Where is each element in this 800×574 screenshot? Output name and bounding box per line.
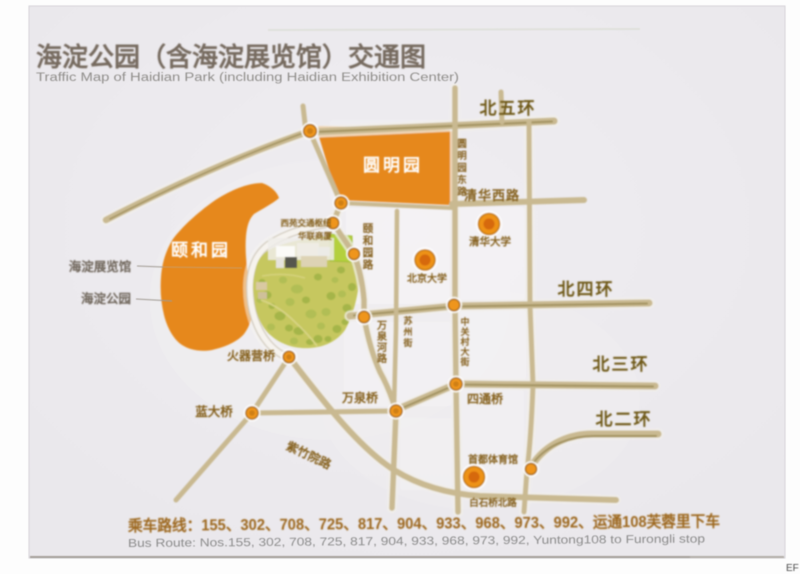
svg-text:EF: EF: [786, 563, 799, 574]
svg-text:颐和园路: 颐和园路: [362, 223, 374, 271]
svg-text:火器营桥: 火器营桥: [227, 348, 276, 363]
svg-text:万泉河路: 万泉河路: [376, 320, 388, 365]
svg-text:西苑交通枢纽: 西苑交通枢纽: [280, 218, 332, 228]
svg-text:苏州街: 苏州街: [402, 315, 412, 348]
svg-text:清华大学: 清华大学: [469, 235, 511, 248]
svg-text:北京大学: 北京大学: [407, 272, 447, 285]
svg-text:万泉桥: 万泉桥: [341, 390, 379, 405]
svg-text:北二环: 北二环: [596, 410, 653, 429]
svg-text:圆明园东路: 圆明园东路: [457, 139, 467, 198]
svg-text:清华西路: 清华西路: [464, 188, 520, 203]
svg-text:北四环: 北四环: [558, 280, 615, 299]
svg-text:Traffic Map of Haidian Park (i: Traffic Map of Haidian Park (including H…: [36, 72, 459, 84]
svg-text:首都体育馆: 首都体育馆: [468, 453, 518, 466]
svg-text:海淀公园（含海淀展览馆）交通图: 海淀公园（含海淀展览馆）交通图: [36, 42, 426, 72]
svg-text:颐和园: 颐和园: [171, 241, 231, 260]
svg-text:圆明园: 圆明园: [363, 156, 423, 175]
svg-text:北五环: 北五环: [480, 99, 537, 118]
svg-text:海淀展览馆: 海淀展览馆: [69, 259, 132, 274]
svg-text:北三环: 北三环: [593, 355, 650, 374]
svg-text:华联商厦: 华联商厦: [298, 231, 333, 241]
svg-text:中关村大街: 中关村大街: [459, 316, 469, 367]
svg-text:蓝大桥: 蓝大桥: [195, 404, 233, 419]
svg-text:白石桥北路: 白石桥北路: [469, 497, 517, 509]
svg-text:海淀公园: 海淀公园: [81, 291, 131, 306]
svg-text:四通桥: 四通桥: [467, 391, 504, 406]
